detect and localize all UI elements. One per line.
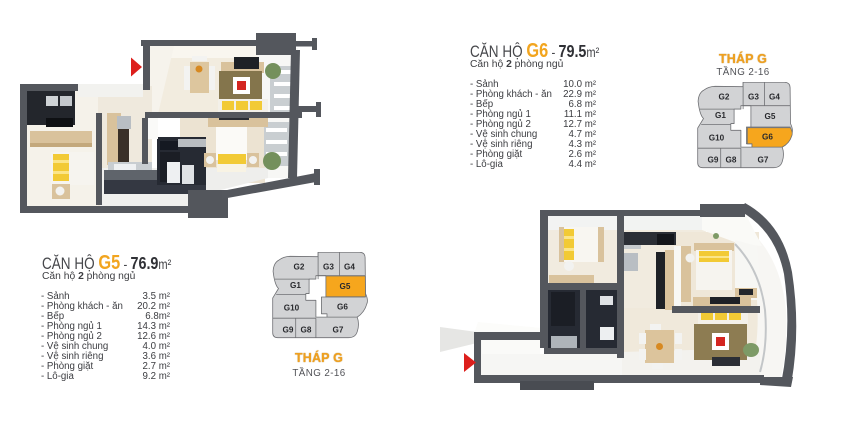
svg-text:G9: G9: [283, 325, 294, 334]
svg-text:G4: G4: [344, 262, 355, 271]
svg-text:G7: G7: [758, 155, 769, 164]
svg-text:G8: G8: [301, 325, 312, 334]
svg-text:G8: G8: [726, 155, 737, 164]
svg-text:G9: G9: [708, 155, 719, 164]
svg-text:G1: G1: [290, 281, 301, 290]
svg-text:G5: G5: [765, 112, 776, 121]
svg-text:G7: G7: [333, 325, 344, 334]
svg-text:G5: G5: [340, 282, 351, 291]
svg-text:G3: G3: [323, 262, 334, 271]
svg-text:G2: G2: [294, 262, 305, 271]
svg-text:G4: G4: [769, 92, 780, 101]
svg-text:G6: G6: [337, 303, 348, 312]
svg-text:G3: G3: [748, 92, 759, 101]
svg-text:G2: G2: [719, 92, 730, 101]
svg-text:G6: G6: [762, 133, 773, 142]
svg-text:G10: G10: [709, 133, 725, 142]
svg-text:G10: G10: [284, 303, 300, 312]
svg-text:G1: G1: [715, 111, 726, 120]
